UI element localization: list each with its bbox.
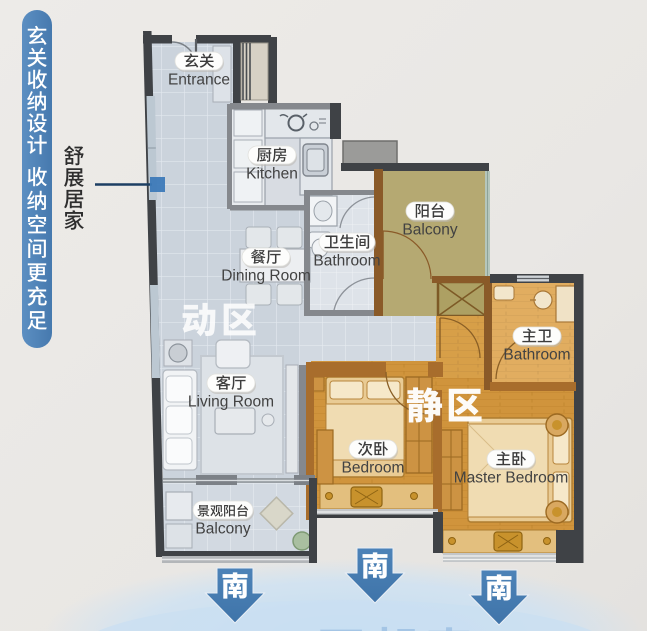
svg-text:Bathroom: Bathroom — [503, 347, 570, 364]
svg-text:Kitchen: Kitchen — [246, 166, 298, 183]
svg-text:Balcony: Balcony — [402, 222, 457, 239]
svg-text:Master Bedroom: Master Bedroom — [454, 470, 569, 487]
svg-text:Balcony: Balcony — [195, 521, 250, 538]
svg-text:Dining Room: Dining Room — [221, 268, 311, 285]
svg-text:Entrance: Entrance — [168, 72, 230, 89]
svg-text:Bedroom: Bedroom — [342, 460, 405, 477]
svg-text:Living Room: Living Room — [188, 394, 274, 411]
svg-text:Bathroom: Bathroom — [313, 253, 380, 270]
